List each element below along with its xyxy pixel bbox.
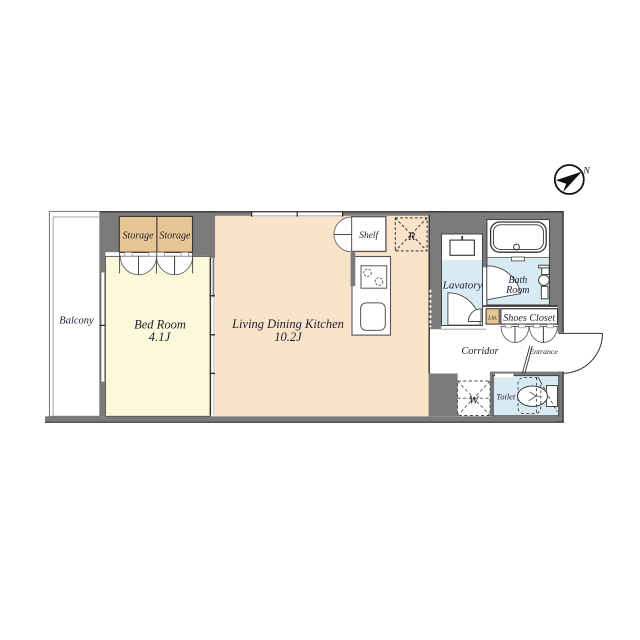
- svg-text:Living Dining Kitchen: Living Dining Kitchen: [231, 317, 344, 331]
- svg-text:W: W: [469, 395, 480, 407]
- svg-text:Room: Room: [505, 285, 529, 296]
- svg-text:4.1J: 4.1J: [149, 330, 172, 344]
- svg-text:Shelf: Shelf: [359, 230, 379, 241]
- svg-text:Storage: Storage: [159, 230, 191, 241]
- svg-text:Shoes Closet: Shoes Closet: [503, 313, 555, 324]
- svg-text:Balcony: Balcony: [59, 315, 94, 326]
- svg-text:Storage: Storage: [122, 230, 154, 241]
- svg-text:Lavatory: Lavatory: [442, 279, 483, 291]
- svg-text:10.2J: 10.2J: [274, 330, 303, 344]
- svg-text:Corridor: Corridor: [461, 346, 499, 357]
- svg-text:R: R: [407, 231, 415, 243]
- svg-text:Lin.: Lin.: [487, 316, 498, 322]
- svg-text:Toilet: Toilet: [496, 392, 516, 402]
- svg-text:Entrance: Entrance: [528, 347, 558, 356]
